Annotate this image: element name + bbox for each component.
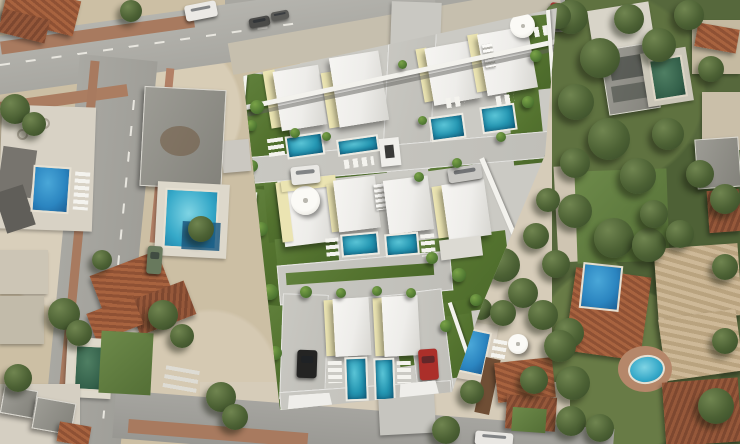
tree <box>544 330 576 362</box>
tree <box>556 366 590 400</box>
tree <box>22 112 46 136</box>
tree <box>66 320 92 346</box>
bush <box>414 172 424 182</box>
villa7-roof <box>383 175 434 234</box>
tree <box>586 414 614 442</box>
car-dark-top-road-a <box>248 15 271 29</box>
bush <box>496 132 506 142</box>
umbrella-villa5 <box>291 186 320 215</box>
tree <box>698 56 724 82</box>
bush <box>290 128 300 138</box>
tree <box>490 300 516 326</box>
tree <box>92 250 112 270</box>
aerial-scene <box>0 0 740 444</box>
pool-green-right <box>648 55 688 102</box>
bush <box>452 158 462 168</box>
tree <box>686 160 714 188</box>
loungers-villa3 <box>445 96 464 109</box>
sidewalk-brick-bottom <box>128 419 309 444</box>
bush <box>372 286 382 296</box>
bush <box>530 50 542 62</box>
tree <box>520 366 548 394</box>
car-white-plot <box>290 165 321 186</box>
pool-villa6 <box>340 231 380 257</box>
bush <box>522 96 534 108</box>
bush <box>440 320 452 332</box>
umbrella-bottomcenter <box>508 334 528 354</box>
pool-villa7 <box>384 232 420 258</box>
tree <box>652 118 684 150</box>
lawn-house-left <box>98 331 153 396</box>
tree <box>536 188 560 212</box>
bush <box>300 286 312 298</box>
tree <box>698 388 734 424</box>
bush <box>452 268 466 282</box>
bush <box>426 252 438 264</box>
loungers-villa9 <box>328 361 343 383</box>
tree <box>148 300 178 330</box>
tree <box>560 148 590 178</box>
pool-villa10 <box>373 358 395 402</box>
pool-blue-right <box>579 262 624 312</box>
zebra-crossing <box>162 365 200 395</box>
bush <box>336 288 346 298</box>
bush <box>470 294 482 306</box>
bush <box>398 60 407 69</box>
car-white-bottom-road <box>474 430 513 444</box>
tree <box>640 200 668 228</box>
bush <box>406 288 416 298</box>
pool-villa4 <box>479 103 517 135</box>
tree <box>523 223 549 249</box>
bush <box>322 132 331 141</box>
car-black-plot <box>297 350 318 379</box>
tree <box>632 228 666 262</box>
tree <box>170 324 194 348</box>
tree <box>712 254 738 280</box>
tree <box>710 184 740 214</box>
villa10-roof <box>381 295 420 357</box>
tree <box>4 364 32 392</box>
tree <box>580 38 620 78</box>
pool-villa3 <box>428 113 466 143</box>
gate-door <box>384 145 394 159</box>
car-red-plot <box>418 348 439 380</box>
tree <box>556 406 586 436</box>
tree <box>614 4 644 34</box>
pool-villa9 <box>344 357 369 402</box>
tree <box>674 0 704 30</box>
tree <box>642 28 676 62</box>
tree <box>594 218 634 258</box>
tree <box>712 328 738 354</box>
building-small-left-b <box>0 296 44 344</box>
loungers-poolside-left <box>73 172 91 211</box>
bush <box>250 100 264 114</box>
pool-blue-left <box>30 165 71 215</box>
roof-terracotta-bottomleft <box>57 421 92 444</box>
lawn-villa-br <box>511 407 547 433</box>
tree <box>222 404 248 430</box>
driveway-south-west <box>279 293 329 401</box>
car-dark-top-road-b <box>270 9 289 21</box>
tree <box>666 220 694 248</box>
tree <box>558 194 592 228</box>
tree <box>588 118 630 160</box>
tree <box>528 300 558 330</box>
van-green-left-road <box>146 246 163 275</box>
loungers-villa6 <box>325 237 340 258</box>
tree <box>432 416 460 444</box>
tree <box>120 0 142 22</box>
villa9-roof <box>333 297 372 357</box>
building-small-left-a <box>0 250 48 294</box>
car-white-top-road <box>184 0 218 22</box>
loungers-villa10 <box>397 361 412 383</box>
villa8-roof <box>441 179 491 240</box>
bush <box>418 116 427 125</box>
tree <box>620 158 656 194</box>
tree <box>558 84 594 120</box>
tree <box>460 380 484 404</box>
tree <box>188 216 214 242</box>
apron-left-gate <box>221 139 252 173</box>
loungers-villa1 <box>267 137 285 157</box>
tree <box>542 250 570 278</box>
